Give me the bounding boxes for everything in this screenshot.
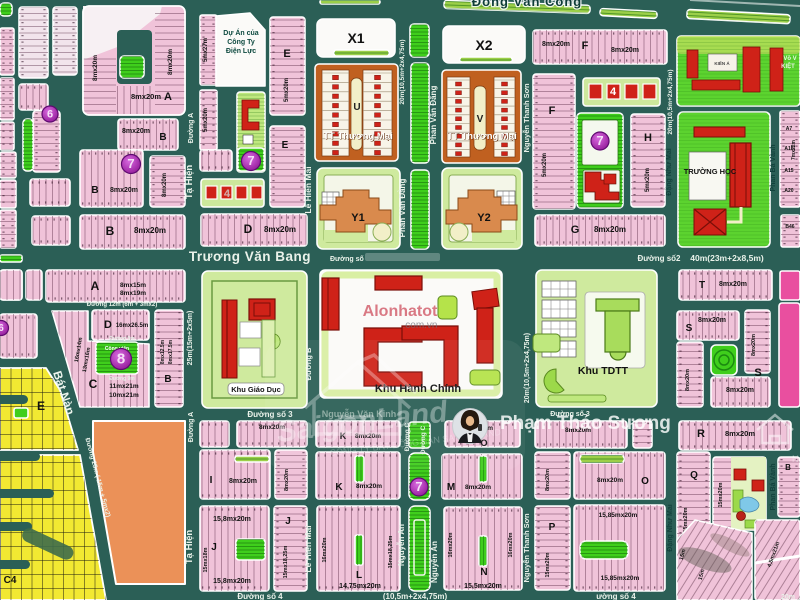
svg-text:8: 8 xyxy=(117,350,125,367)
svg-text:15mx18,25m: 15mx18,25m xyxy=(283,546,289,579)
svg-text:8mx20m: 8mx20m xyxy=(611,47,639,54)
svg-text:F: F xyxy=(549,105,556,117)
svg-text:Phan Bá Vành: Phan Bá Vành xyxy=(770,144,777,191)
svg-text:X2: X2 xyxy=(475,37,492,53)
svg-text:KIỆT: KIỆT xyxy=(781,62,795,70)
svg-text:15,85mx20m: 15,85mx20m xyxy=(601,575,640,582)
svg-text:Dự Án của: Dự Án của xyxy=(223,28,259,37)
svg-text:8mx20m: 8mx20m xyxy=(162,173,168,197)
svg-text:4: 4 xyxy=(224,188,231,200)
svg-text:F: F xyxy=(582,40,589,52)
svg-text:20m(10,5m+2x4,75m): 20m(10,5m+2x4,75m) xyxy=(399,39,406,104)
svg-text:7: 7 xyxy=(127,156,134,171)
svg-text:J: J xyxy=(211,542,217,553)
svg-text:A20: A20 xyxy=(784,188,793,194)
svg-text:Đường A: Đường A xyxy=(188,412,195,442)
svg-text:8mx20m: 8mx20m xyxy=(698,317,726,324)
svg-text:6: 6 xyxy=(0,323,4,334)
svg-text:25m(15m+2x5m): 25m(15m+2x5m) xyxy=(187,311,194,366)
svg-text:8mx20m: 8mx20m xyxy=(542,41,570,48)
svg-text:H: H xyxy=(644,132,652,144)
svg-text:Y2: Y2 xyxy=(477,212,490,224)
svg-text:8mx20m: 8mx20m xyxy=(597,477,623,484)
svg-text:4: 4 xyxy=(610,86,617,98)
svg-text:Công Ty: Công Ty xyxy=(227,39,255,46)
svg-text:8mx12.5m: 8mx12.5m xyxy=(160,339,166,364)
svg-text:8mx20m: 8mx20m xyxy=(167,49,174,75)
svg-text:Nguyễn Thanh Sơn: Nguyễn Thanh Sơn xyxy=(522,83,531,153)
svg-text:Đường A: Đường A xyxy=(188,113,195,143)
svg-text:ường số 4: ường số 4 xyxy=(596,592,636,600)
svg-text:(10,5m+2x4,75m): (10,5m+2x4,75m) xyxy=(383,592,448,600)
svg-text:C: C xyxy=(89,377,98,391)
svg-text:A: A xyxy=(91,279,100,293)
svg-text:D: D xyxy=(104,319,112,331)
svg-text:Đường 12m (6m + 3mx2): Đường 12m (6m + 3mx2) xyxy=(87,302,157,308)
svg-text:8mx20m: 8mx20m xyxy=(545,469,551,491)
svg-text:5mx20m: 5mx20m xyxy=(284,78,290,102)
svg-text:C4: C4 xyxy=(4,575,17,586)
svg-text:Nguyễn An: Nguyễn An xyxy=(397,524,406,566)
svg-text:6: 6 xyxy=(47,108,53,120)
svg-text:8mx20m: 8mx20m xyxy=(685,369,691,391)
svg-text:5mx20m: 5mx20m xyxy=(203,108,209,132)
svg-text:K: K xyxy=(335,482,343,493)
svg-text:KIẾN Á: KIẾN Á xyxy=(714,60,730,66)
svg-text:15mx20m: 15mx20m xyxy=(545,552,551,577)
svg-text:TT Thương Mại: TT Thương Mại xyxy=(447,131,517,142)
svg-text:L: L xyxy=(356,570,362,581)
svg-text:P: P xyxy=(549,522,556,533)
svg-text:7: 7 xyxy=(247,153,254,168)
svg-text:E: E xyxy=(37,399,45,413)
svg-text:Võ V: Võ V xyxy=(783,56,796,62)
svg-text:Đường số 4: Đường số 4 xyxy=(237,592,283,600)
svg-text:B: B xyxy=(785,463,791,472)
svg-text:8mx20m: 8mx20m xyxy=(134,226,166,235)
svg-text:8mx20m: 8mx20m xyxy=(284,469,290,491)
svg-text:Đường số2: Đường số2 xyxy=(637,254,681,263)
svg-text:20m(10,5m+2x4,75m): 20m(10,5m+2x4,75m) xyxy=(667,69,674,134)
svg-text:Q: Q xyxy=(690,470,698,481)
svg-text:X1: X1 xyxy=(347,30,364,46)
svg-text:8mx20m: 8mx20m xyxy=(719,281,747,288)
svg-text:15,5mx20m: 15,5mx20m xyxy=(464,583,502,590)
svg-text:7mx22m: 7mx22m xyxy=(791,139,797,160)
svg-text:Phan Văn Đằng: Phan Văn Đằng xyxy=(398,179,407,238)
svg-text:8mx20m: 8mx20m xyxy=(92,55,99,81)
svg-text:Điện Lực: Điện Lực xyxy=(226,48,256,55)
svg-text:Trương Văn Bang: Trương Văn Bang xyxy=(189,249,311,264)
svg-text:N: N xyxy=(480,567,487,578)
svg-text:20m: 20m xyxy=(781,594,795,600)
svg-text:B: B xyxy=(91,185,98,196)
svg-text:15,8mx20m: 15,8mx20m xyxy=(213,578,251,585)
svg-text:M: M xyxy=(447,482,455,493)
svg-text:Đường 9m: Đường 9m xyxy=(109,336,135,342)
svg-text:7: 7 xyxy=(596,133,603,148)
svg-text:15mx18m: 15mx18m xyxy=(203,547,209,572)
svg-text:TRƯỜNG HỌC: TRƯỜNG HỌC xyxy=(684,167,737,176)
svg-text:8mx20m: 8mx20m xyxy=(725,429,755,438)
svg-text:8mx20m: 8mx20m xyxy=(131,92,161,101)
svg-text:8mx20m: 8mx20m xyxy=(229,478,257,485)
svg-text:5mx20m: 5mx20m xyxy=(542,153,548,177)
svg-text:7: 7 xyxy=(415,479,422,494)
svg-text:8mx20m: 8mx20m xyxy=(726,387,754,394)
svg-text:D: D xyxy=(244,222,253,236)
svg-text:Ngu: Ngu xyxy=(792,454,800,464)
svg-text:T: T xyxy=(699,280,705,291)
svg-text:5mx20m: 5mx20m xyxy=(645,168,651,192)
svg-text:16mx26.5m: 16mx26.5m xyxy=(116,323,148,329)
svg-text:8mx20m: 8mx20m xyxy=(356,483,382,490)
svg-text:5mx27m: 5mx27m xyxy=(203,38,209,62)
svg-text:10mx21m: 10mx21m xyxy=(109,392,139,399)
svg-text:8mx20m: 8mx20m xyxy=(264,225,296,234)
svg-text:B46: B46 xyxy=(785,224,794,230)
svg-text:O: O xyxy=(641,476,649,487)
svg-text:.com.vn: .com.vn xyxy=(402,320,437,331)
svg-text:Phan Văn Đằng: Phan Văn Đằng xyxy=(429,86,438,145)
svg-text:8mx20m: 8mx20m xyxy=(751,334,757,356)
svg-text:14,75mx20m: 14,75mx20m xyxy=(339,583,381,590)
svg-text:Lê Hiến Mai: Lê Hiến Mai xyxy=(303,525,313,572)
svg-text:I: I xyxy=(210,475,213,486)
svg-text:V: V xyxy=(477,114,484,125)
svg-text:A7: A7 xyxy=(786,126,793,132)
svg-text:15mx20m: 15mx20m xyxy=(718,482,724,507)
svg-text:15,8mx20m: 15,8mx20m xyxy=(213,516,251,523)
svg-text:E: E xyxy=(283,48,290,60)
svg-text:Lê Hiến Mai: Lê Hiến Mai xyxy=(303,166,313,213)
svg-text:Đặng Như Mai: Đặng Như Mai xyxy=(666,148,673,196)
svg-text:Alonhatot: Alonhatot xyxy=(363,303,438,320)
svg-text:20m(10,5m+2x4,75m): 20m(10,5m+2x4,75m) xyxy=(524,333,531,403)
svg-text:E: E xyxy=(282,140,289,151)
svg-text:Đường số: Đường số xyxy=(330,255,364,263)
svg-text:B: B xyxy=(159,132,166,143)
svg-text:Đồng Văn Cống: Đồng Văn Cống xyxy=(472,0,583,9)
svg-text:J: J xyxy=(285,516,291,527)
svg-text:S: S xyxy=(686,323,693,334)
svg-text:11mx21m: 11mx21m xyxy=(109,383,138,390)
svg-text:A15: A15 xyxy=(784,168,793,174)
svg-text:16mx20m: 16mx20m xyxy=(448,532,454,557)
svg-text:8mx20m: 8mx20m xyxy=(465,484,491,491)
svg-text:8mx20m: 8mx20m xyxy=(110,187,138,194)
svg-text:U: U xyxy=(353,102,360,113)
svg-text:TT Thương Mại: TT Thương Mại xyxy=(323,131,393,142)
svg-text:Nguyễn An: Nguyễn An xyxy=(430,541,439,583)
svg-text:8mx17.5m: 8mx17.5m xyxy=(168,339,174,364)
svg-text:Đặng Như Mai: Đặng Như Mai xyxy=(667,504,674,552)
svg-text:A: A xyxy=(164,91,172,103)
svg-text:8mx20m: 8mx20m xyxy=(594,225,626,234)
svg-text:40m(23m+2x8,5m): 40m(23m+2x8,5m) xyxy=(690,253,764,263)
svg-text:Đường 9m: Đường 9m xyxy=(109,376,135,382)
svg-text:Nguyễn Thanh Sơn: Nguyễn Thanh Sơn xyxy=(522,513,531,583)
svg-text:Tạ Hiện: Tạ Hiện xyxy=(184,165,195,200)
svg-text:Y1: Y1 xyxy=(351,212,364,224)
svg-text:Khu TDTT: Khu TDTT xyxy=(578,365,629,377)
svg-text:G: G xyxy=(571,224,580,236)
svg-text:8mx19m: 8mx19m xyxy=(120,290,146,297)
svg-text:16mx20m: 16mx20m xyxy=(508,532,514,557)
svg-text:Phan Bá Vành: Phan Bá Vành xyxy=(770,463,777,510)
svg-text:B: B xyxy=(106,224,115,238)
svg-text:15mx18,25m: 15mx18,25m xyxy=(388,536,394,569)
svg-text:Tạ Hiện: Tạ Hiện xyxy=(184,530,195,565)
svg-text:15,85mx20m: 15,85mx20m xyxy=(599,512,638,519)
svg-text:8mx20m: 8mx20m xyxy=(122,128,150,135)
svg-text:R: R xyxy=(697,428,705,440)
svg-text:Phạm Thảo Sương: Phạm Thảo Sương xyxy=(500,413,671,434)
svg-text:16mx20m: 16mx20m xyxy=(322,537,328,562)
svg-text:B: B xyxy=(164,374,171,385)
svg-text:8mx15m: 8mx15m xyxy=(120,282,146,289)
